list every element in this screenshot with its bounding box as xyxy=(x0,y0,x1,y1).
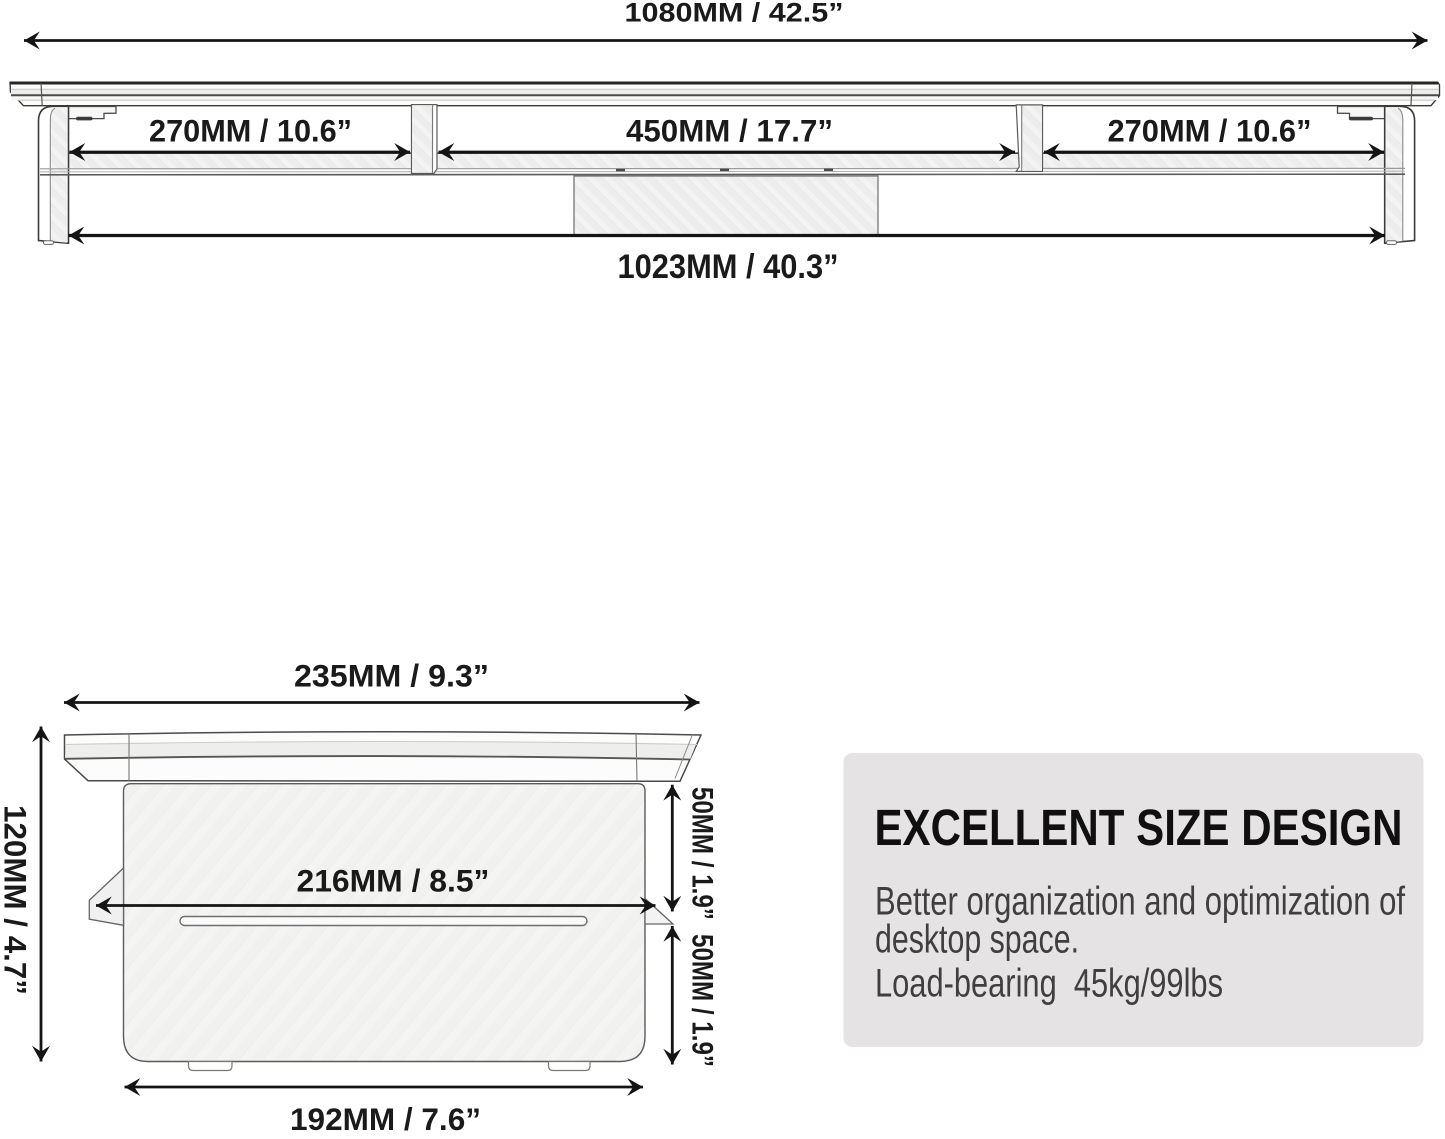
svg-text:450MM / 17.7”: 450MM / 17.7” xyxy=(626,113,833,149)
svg-text:270MM / 10.6”: 270MM / 10.6” xyxy=(1108,113,1312,149)
svg-text:216MM / 8.5”: 216MM / 8.5” xyxy=(297,863,490,899)
svg-text:desktop space.: desktop space. xyxy=(875,918,1079,962)
svg-text:50MM / 1.9”: 50MM / 1.9” xyxy=(686,787,719,920)
svg-text:270MM / 10.6”: 270MM / 10.6” xyxy=(149,113,352,149)
svg-text:1023MM / 40.3”: 1023MM / 40.3” xyxy=(618,248,839,286)
svg-text:EXCELLENT SIZE DESIGN: EXCELLENT SIZE DESIGN xyxy=(875,799,1403,856)
svg-text:235MM / 9.3”: 235MM / 9.3” xyxy=(294,658,489,694)
svg-text:50MM / 1.9”: 50MM / 1.9” xyxy=(686,934,719,1067)
svg-text:120MM / 4.7”: 120MM / 4.7” xyxy=(0,805,34,995)
svg-text:192MM / 7.6”: 192MM / 7.6” xyxy=(290,1101,481,1134)
svg-text:Load-bearing 45kg/99lbs: Load-bearing 45kg/99lbs xyxy=(875,962,1223,1006)
svg-text:1080MM / 42.5”: 1080MM / 42.5” xyxy=(625,0,844,28)
